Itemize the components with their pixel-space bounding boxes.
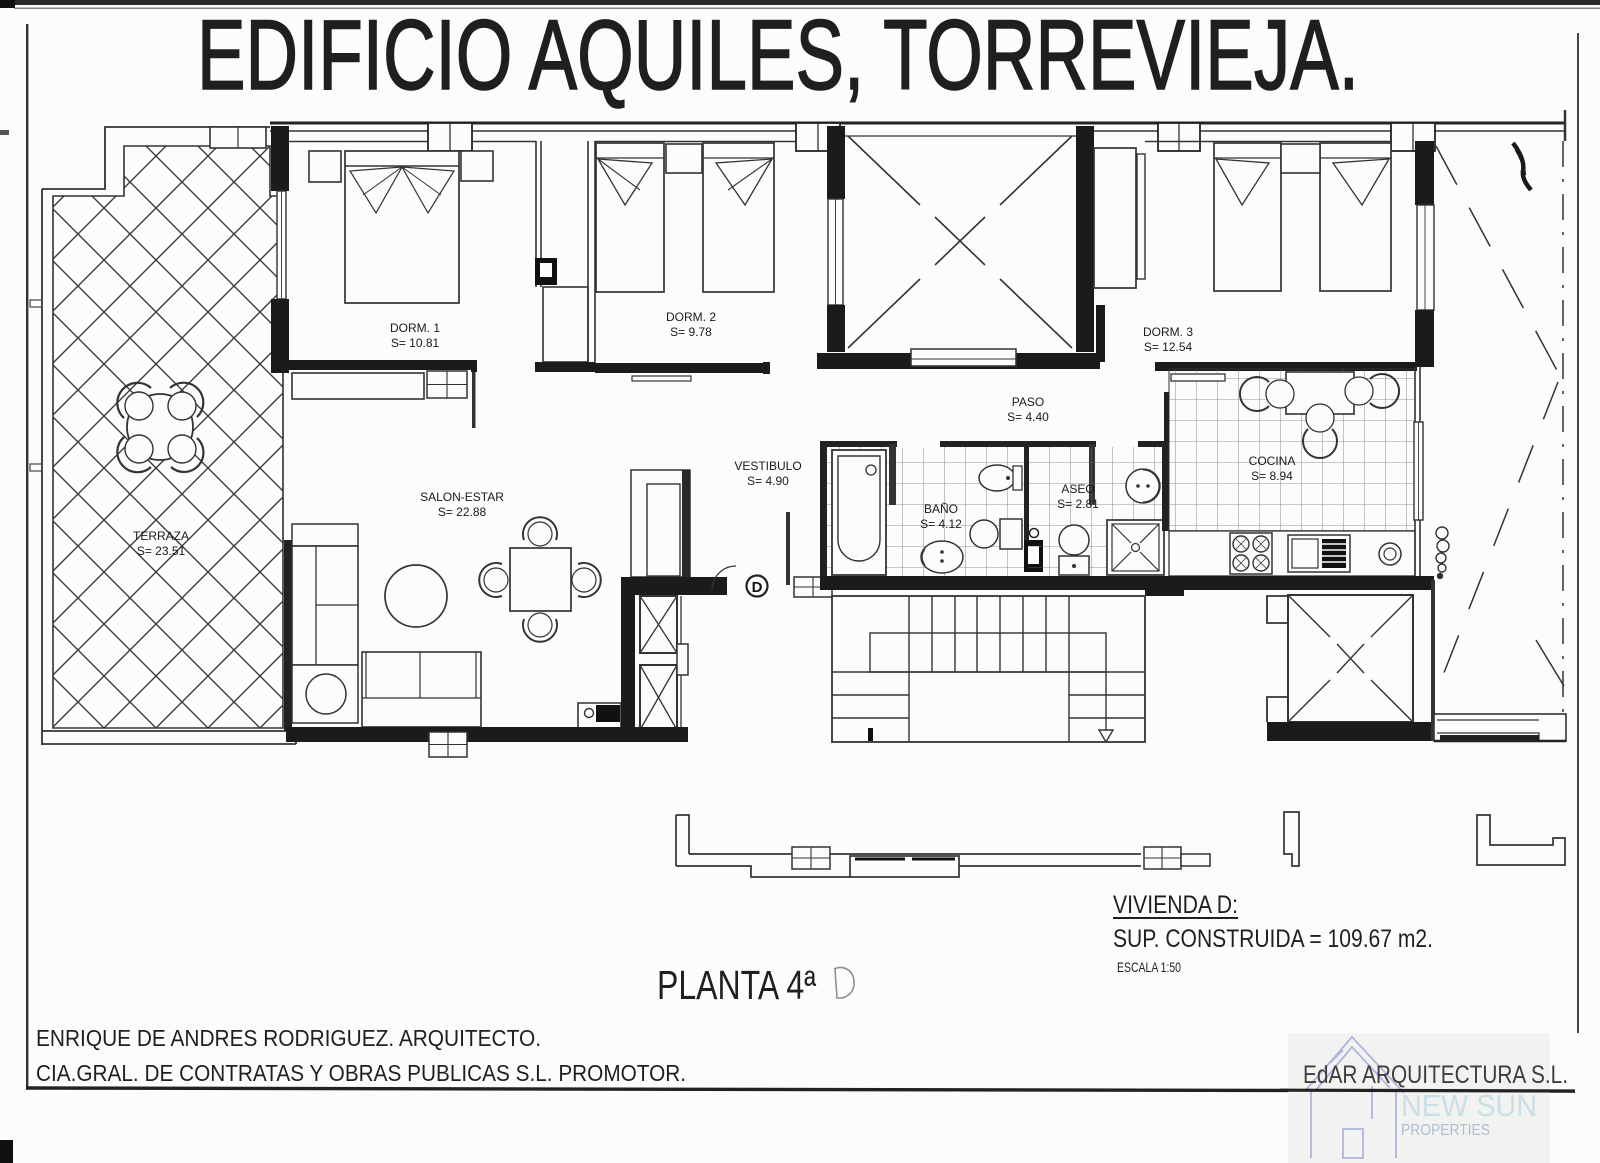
svg-text:ENRIQUE DE ANDRES RODRIGUEZ. A: ENRIQUE DE ANDRES RODRIGUEZ. ARQUITECTO. xyxy=(36,1025,541,1051)
svg-text:PASO: PASO xyxy=(1012,395,1044,409)
svg-text:S= 2.81: S= 2.81 xyxy=(1057,497,1099,511)
svg-text:S= 22.88: S= 22.88 xyxy=(438,505,487,519)
svg-text:NEW SUN: NEW SUN xyxy=(1401,1088,1537,1123)
svg-text:COCINA: COCINA xyxy=(1249,454,1296,468)
svg-text:VESTIBULO: VESTIBULO xyxy=(734,459,801,473)
svg-text:S= 4.90: S= 4.90 xyxy=(747,474,789,488)
svg-text:S= 10.81: S= 10.81 xyxy=(391,336,440,350)
svg-text:ESCALA 1:50: ESCALA 1:50 xyxy=(1117,959,1181,975)
svg-text:VIVIENDA D:: VIVIENDA D: xyxy=(1113,891,1238,919)
svg-text:DORM. 2: DORM. 2 xyxy=(666,310,716,324)
svg-text:D: D xyxy=(752,579,763,596)
svg-text:S= 8.94: S= 8.94 xyxy=(1251,469,1293,483)
svg-text:BAÑO: BAÑO xyxy=(924,502,958,516)
svg-text:DORM. 1: DORM. 1 xyxy=(390,321,440,335)
svg-text:S= 23.51: S= 23.51 xyxy=(137,544,186,558)
svg-text:DORM. 3: DORM. 3 xyxy=(1143,325,1193,339)
svg-text:EdAR ARQUITECTURA S.L.: EdAR ARQUITECTURA S.L. xyxy=(1303,1061,1568,1089)
svg-text:TERRAZA: TERRAZA xyxy=(133,529,189,543)
svg-text:PLANTA 4ª: PLANTA 4ª xyxy=(657,962,817,1008)
svg-text:CIA.GRAL. DE CONTRATAS Y OBRAS: CIA.GRAL. DE CONTRATAS Y OBRAS PUBLICAS … xyxy=(36,1060,686,1086)
svg-text:EDIFICIO AQUILES, TORREVIEJA.: EDIFICIO AQUILES, TORREVIEJA. xyxy=(197,0,1359,110)
svg-text:S= 4.40: S= 4.40 xyxy=(1007,410,1049,424)
svg-text:S= 4.12: S= 4.12 xyxy=(920,517,962,531)
svg-text:ASEO: ASEO xyxy=(1061,482,1094,496)
svg-text:S= 12.54: S= 12.54 xyxy=(1144,340,1193,354)
svg-text:SUP. CONSTRUIDA = 109.67 m2.: SUP. CONSTRUIDA = 109.67 m2. xyxy=(1113,925,1433,953)
svg-text:S= 9.78: S= 9.78 xyxy=(670,325,712,339)
svg-text:SALON-ESTAR: SALON-ESTAR xyxy=(420,490,504,504)
svg-text:PROPERTIES: PROPERTIES xyxy=(1401,1122,1490,1139)
